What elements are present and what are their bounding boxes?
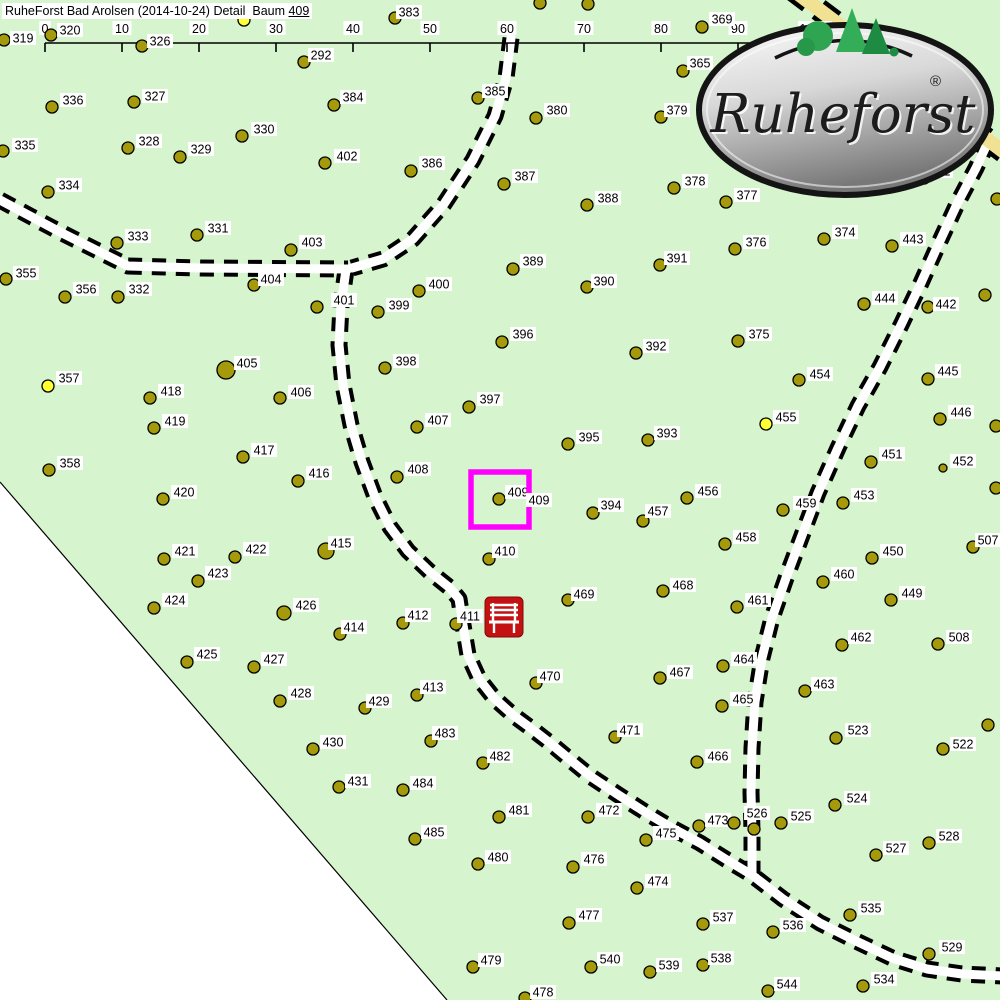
tree-label-402: 402: [337, 150, 358, 164]
tree-label-326: 326: [150, 35, 171, 49]
tree-label-450: 450: [883, 545, 904, 559]
tree-label-478: 478: [533, 986, 554, 1000]
tree-dot-356[interactable]: [59, 291, 71, 303]
tree-dot-403[interactable]: [285, 244, 297, 256]
tree-label-420: 420: [174, 486, 195, 500]
tree-dot-528[interactable]: [923, 837, 935, 849]
tree-dot-398[interactable]: [379, 362, 391, 374]
tree-dot[interactable]: [728, 817, 740, 829]
tree-label-376: 376: [746, 236, 767, 250]
tree-dot-425[interactable]: [181, 656, 193, 668]
tree-label-393: 393: [657, 427, 678, 441]
tree-label-335: 335: [15, 139, 36, 153]
tree-label-443: 443: [903, 233, 924, 247]
tree-label-455: 455: [776, 411, 797, 425]
tree-dot-466[interactable]: [691, 756, 703, 768]
tree-dot-468[interactable]: [657, 585, 669, 597]
tree-label-394: 394: [601, 499, 622, 513]
tree-label-477: 477: [579, 909, 600, 923]
tree-dot-355[interactable]: [0, 273, 12, 285]
tree-dot-377[interactable]: [720, 196, 732, 208]
tree-label-379: 379: [667, 104, 688, 118]
tree-label-355: 355: [16, 267, 37, 281]
tree-label-454: 454: [810, 368, 831, 382]
tree-label-422: 422: [246, 543, 267, 557]
tree-label-389: 389: [523, 255, 544, 269]
tree-label-380: 380: [547, 104, 568, 118]
tree-dot-405[interactable]: [217, 361, 235, 379]
tree-dot-461[interactable]: [731, 601, 743, 613]
tree-dot-357[interactable]: [42, 380, 54, 392]
tree-label-508: 508: [949, 631, 970, 645]
tree-dot-444[interactable]: [858, 298, 870, 310]
tree-label-395: 395: [579, 431, 600, 445]
tree-label-449: 449: [902, 587, 923, 601]
tree-dot-467[interactable]: [654, 672, 666, 684]
tree-dot-426[interactable]: [277, 606, 291, 620]
tree-label-331: 331: [208, 222, 229, 236]
tree-label-407: 407: [428, 414, 449, 428]
tree-label-369: 369: [712, 13, 733, 27]
tree-label-526: 526: [747, 807, 768, 821]
tree-dot[interactable]: [990, 482, 1000, 494]
tree-label-374: 374: [835, 226, 856, 240]
tree-dot-320[interactable]: [45, 29, 57, 41]
tree-label-426: 426: [296, 599, 317, 613]
tree-label-483: 483: [435, 727, 456, 741]
tree-label-458: 458: [736, 531, 757, 545]
tree-label-540: 540: [600, 953, 621, 967]
tree-label-329: 329: [191, 143, 212, 157]
tree-dot-421[interactable]: [158, 553, 170, 565]
tree-label-460: 460: [834, 568, 855, 582]
tree-label-451: 451: [882, 448, 903, 462]
tree-dot-326[interactable]: [136, 40, 148, 52]
tree-label-507: 507: [978, 534, 999, 548]
tree-dot-393[interactable]: [642, 434, 654, 446]
tree-dot-409[interactable]: [493, 493, 505, 505]
tree-label-375: 375: [749, 328, 770, 342]
tree-label-471: 471: [620, 724, 641, 738]
tree-label-415: 415: [331, 537, 352, 551]
tree-dot-397[interactable]: [463, 401, 475, 413]
tree-dot-369[interactable]: [696, 21, 708, 33]
tree-label-388: 388: [598, 192, 619, 206]
tree-label-319: 319: [13, 32, 34, 46]
tree-dot-463[interactable]: [799, 685, 811, 697]
tree-label-378: 378: [685, 175, 706, 189]
tree-label-412: 412: [408, 609, 429, 623]
tree-dot-465[interactable]: [716, 700, 728, 712]
map-title-text: RuheForst Bad Arolsen (2014-10-24) Detai…: [5, 4, 288, 18]
map-viewport[interactable]: 0102030405060708090100m31932032638329233…: [0, 0, 1000, 1000]
tree-label-466: 466: [708, 750, 729, 764]
tree-dot-456[interactable]: [681, 492, 693, 504]
tree-label-430: 430: [323, 736, 344, 750]
tree-label-445: 445: [938, 365, 959, 379]
tree-label-534: 534: [874, 973, 895, 987]
tree-dot-400[interactable]: [413, 285, 425, 297]
tree-dot-384[interactable]: [328, 99, 340, 111]
tree-dot-464[interactable]: [717, 660, 729, 672]
tree-label-456: 456: [698, 485, 719, 499]
scale-label-60: 60: [500, 22, 514, 36]
tree-label-397: 397: [480, 393, 501, 407]
tree-dot-380[interactable]: [530, 112, 542, 124]
tree-dot-536[interactable]: [767, 926, 779, 938]
tree-dot-396[interactable]: [496, 336, 508, 348]
tree-dot-332[interactable]: [112, 291, 124, 303]
tree-label-357: 357: [59, 372, 80, 386]
tree-dot-478[interactable]: [519, 992, 531, 1000]
tree-label-391: 391: [667, 252, 688, 266]
tree-label-398: 398: [396, 355, 417, 369]
tree-label-414: 414: [344, 621, 365, 635]
tree-dot-334[interactable]: [42, 186, 54, 198]
tree-label-527: 527: [886, 842, 907, 856]
scale-label-70: 70: [577, 22, 591, 36]
tree-label-457: 457: [648, 505, 669, 519]
tree-dot-458[interactable]: [719, 538, 731, 550]
tree-label-442: 442: [936, 298, 957, 312]
tree-label-484: 484: [413, 777, 434, 791]
tree-dot-539[interactable]: [644, 966, 656, 978]
tree-dot-523[interactable]: [830, 732, 842, 744]
tree-label-467: 467: [670, 666, 691, 680]
tree-dot-472[interactable]: [582, 811, 594, 823]
tree-dot-423[interactable]: [192, 575, 204, 587]
tree-label-427: 427: [264, 653, 285, 667]
tree-label-400: 400: [429, 278, 450, 292]
tree-dot-399[interactable]: [372, 306, 384, 318]
tree-dot-451[interactable]: [865, 456, 877, 468]
tree-dot-388[interactable]: [581, 199, 593, 211]
tree-label-473: 473: [708, 814, 729, 828]
tree-label-403: 403: [302, 236, 323, 250]
tree-label-429: 429: [369, 695, 390, 709]
tree-dot[interactable]: [990, 420, 1000, 432]
tree-dot[interactable]: [534, 0, 546, 9]
tree-label-482: 482: [490, 750, 511, 764]
tree-label-428: 428: [291, 687, 312, 701]
tree-dot[interactable]: [979, 289, 991, 301]
scale-label-20: 20: [192, 22, 206, 36]
tree-label-365: 365: [690, 57, 711, 71]
tree-label-387: 387: [515, 170, 536, 184]
tree-dot-419[interactable]: [148, 422, 160, 434]
tree-dot-540[interactable]: [585, 961, 597, 973]
tree-label-356: 356: [76, 283, 97, 297]
tree-label-385: 385: [485, 85, 506, 99]
tree-dot-481[interactable]: [493, 811, 505, 823]
tree-label-536: 536: [783, 919, 804, 933]
tree-label-485: 485: [424, 826, 445, 840]
tree-dot-431[interactable]: [333, 781, 345, 793]
bench-icon[interactable]: [485, 597, 523, 637]
tree-label-292: 292: [311, 49, 332, 63]
tree-dot-407[interactable]: [411, 421, 423, 433]
tree-label-472: 472: [599, 804, 620, 818]
tree-label-468: 468: [673, 579, 694, 593]
tree-dot-406[interactable]: [274, 392, 286, 404]
tree-label-383: 383: [399, 6, 420, 20]
tree-label-386: 386: [422, 157, 443, 171]
tree-dot[interactable]: [582, 0, 594, 10]
tree-dot-392[interactable]: [630, 347, 642, 359]
tree-dot-535[interactable]: [844, 909, 856, 921]
tree-dot-378[interactable]: [668, 182, 680, 194]
tree-label-538: 538: [711, 952, 732, 966]
tree-label-332: 332: [129, 283, 150, 297]
tree-dot-420[interactable]: [157, 493, 169, 505]
tree-label-529: 529: [942, 941, 963, 955]
tree-label-524: 524: [847, 792, 868, 806]
tree-dot-453[interactable]: [837, 497, 849, 509]
tree-dot-522[interactable]: [937, 743, 949, 755]
tree-label-431: 431: [348, 775, 369, 789]
logo-registered-mark: ®: [930, 73, 941, 90]
tree-dot-330[interactable]: [236, 130, 248, 142]
tree-label-470: 470: [540, 670, 561, 684]
scale-label-50: 50: [423, 22, 437, 36]
tree-dot-476[interactable]: [567, 861, 579, 873]
tree-dot-442[interactable]: [922, 301, 934, 313]
tree-label-463: 463: [814, 678, 835, 692]
tree-dot-538[interactable]: [697, 959, 709, 971]
tree-label-537: 537: [713, 911, 734, 925]
tree-dot-527[interactable]: [870, 849, 882, 861]
tree-dot-484[interactable]: [397, 784, 409, 796]
tree-label-544: 544: [777, 978, 798, 992]
tree-dot-485[interactable]: [409, 833, 421, 845]
tree-label-424: 424: [165, 594, 186, 608]
tree-dot-329[interactable]: [174, 151, 186, 163]
logo-text: Ruheforst: [710, 84, 977, 145]
tree-label-358: 358: [60, 457, 81, 471]
tree-dot-473[interactable]: [693, 820, 705, 832]
tree-dot-446[interactable]: [934, 413, 946, 425]
tree-label-423: 423: [208, 567, 229, 581]
tree-label-446: 446: [951, 406, 972, 420]
map-title: RuheForst Bad Arolsen (2014-10-24) Detai…: [2, 3, 312, 19]
tree-dot-454[interactable]: [793, 374, 805, 386]
tree-dot-508[interactable]: [932, 638, 944, 650]
tree-dot-459[interactable]: [777, 504, 789, 516]
tree-dot-474[interactable]: [631, 882, 643, 894]
tree-label-327: 327: [145, 90, 166, 104]
tree-dot-428[interactable]: [274, 695, 286, 707]
tree-label-528: 528: [939, 830, 960, 844]
tree-label-539: 539: [659, 959, 680, 973]
tree-label-377: 377: [737, 189, 758, 203]
tree-dot-537[interactable]: [697, 918, 709, 930]
tree-label-410: 410: [495, 545, 516, 559]
tree-label-401: 401: [334, 294, 355, 308]
tree-dot-460[interactable]: [817, 576, 829, 588]
tree-label-479: 479: [481, 954, 502, 968]
tree-label-425: 425: [197, 648, 218, 662]
tree-label-476: 476: [584, 853, 605, 867]
tree-label-384: 384: [343, 91, 364, 105]
tree-dot-335[interactable]: [0, 145, 9, 157]
tree-label-399: 399: [389, 299, 410, 313]
tree-label-523: 523: [848, 724, 869, 738]
tree-dot-443[interactable]: [886, 240, 898, 252]
tree-label-417: 417: [254, 444, 275, 458]
tree-label-525: 525: [791, 810, 812, 824]
tree-dot-462[interactable]: [836, 639, 848, 651]
tree-label-336: 336: [63, 94, 84, 108]
tree-dot-327[interactable]: [128, 96, 140, 108]
tree-dot-375[interactable]: [732, 335, 744, 347]
tree-label-461: 461: [748, 594, 769, 608]
tree-dot-416[interactable]: [292, 475, 304, 487]
scale-label-80: 80: [654, 22, 668, 36]
tree-dot-376[interactable]: [729, 243, 741, 255]
tree-label-475: 475: [656, 827, 677, 841]
tree-label-452: 452: [953, 455, 974, 469]
tree-dot-529[interactable]: [923, 948, 935, 960]
tree-dot-328[interactable]: [122, 142, 134, 154]
tree-dot-544[interactable]: [762, 985, 774, 997]
tree-dot-333[interactable]: [111, 237, 123, 249]
tree-label-334: 334: [59, 179, 80, 193]
tree-dot-424[interactable]: [148, 602, 160, 614]
tree-label-320: 320: [60, 24, 81, 38]
tree-label-459: 459: [796, 497, 817, 511]
tree-label-419: 419: [165, 415, 186, 429]
tree-dot[interactable]: [991, 193, 1000, 205]
tree-dot-336[interactable]: [46, 101, 58, 113]
tree-dot-526[interactable]: [748, 823, 760, 835]
tree-label-474: 474: [648, 875, 669, 889]
tree-dot-374[interactable]: [818, 233, 830, 245]
tree-label-481: 481: [509, 804, 530, 818]
tree-label-333: 333: [128, 230, 149, 244]
tree-label-409: 409: [508, 486, 529, 500]
tree-dot-477[interactable]: [563, 917, 575, 929]
tree-dot-418[interactable]: [144, 392, 156, 404]
tree-label-464: 464: [734, 653, 755, 667]
tree-dot[interactable]: [982, 719, 994, 731]
tree-dot-422[interactable]: [229, 551, 241, 563]
tree-label-411: 411: [460, 610, 480, 624]
tree-dot-358[interactable]: [43, 464, 55, 476]
tree-dot-395[interactable]: [562, 438, 574, 450]
tree-dot-524[interactable]: [829, 799, 841, 811]
tree-label-453: 453: [854, 489, 875, 503]
tree-dot-452[interactable]: [939, 464, 947, 472]
tree-dot-449[interactable]: [885, 594, 897, 606]
tree-dot-389[interactable]: [507, 263, 519, 275]
tree-label-396: 396: [513, 328, 534, 342]
tree-dot-402[interactable]: [319, 157, 331, 169]
tree-dot-319[interactable]: [0, 34, 10, 46]
tree-label-330: 330: [254, 123, 275, 137]
tree-dot-445[interactable]: [922, 373, 934, 385]
tree-dot-534[interactable]: [857, 980, 869, 992]
tree-label-421: 421: [175, 545, 196, 559]
map-title-highlight: 409: [288, 4, 309, 18]
tree-dot-331[interactable]: [191, 229, 203, 241]
tree-dot-386[interactable]: [405, 165, 417, 177]
tree-dot-394[interactable]: [587, 507, 599, 519]
tree-label-416: 416: [309, 467, 330, 481]
tree-dot-450[interactable]: [866, 552, 878, 564]
scale-label-30: 30: [269, 22, 283, 36]
tree-dot-525[interactable]: [775, 817, 787, 829]
tree-dot-430[interactable]: [307, 743, 319, 755]
tree-dot-408[interactable]: [391, 471, 403, 483]
tree-label-392: 392: [646, 340, 667, 354]
tree-dot-387[interactable]: [498, 178, 510, 190]
tree-label-413: 413: [423, 681, 444, 695]
tree-dot-427[interactable]: [248, 661, 260, 673]
tree-label-480: 480: [488, 851, 509, 865]
tree-label-444: 444: [875, 292, 896, 306]
tree-label-406: 406: [291, 386, 312, 400]
tree-label-404: 404: [261, 273, 282, 287]
tree-label-405: 405: [237, 357, 258, 371]
tree-dot-401[interactable]: [311, 301, 323, 313]
tree-label-522: 522: [953, 738, 974, 752]
scale-label-10: 10: [115, 22, 129, 36]
tree-dot-475[interactable]: [640, 834, 652, 846]
map-svg[interactable]: 0102030405060708090100m31932032638329233…: [0, 0, 1000, 1000]
tree-dot-417[interactable]: [237, 451, 249, 463]
tree-label-469: 469: [574, 588, 595, 602]
tree-label-408: 408: [408, 463, 429, 477]
tree-label-390: 390: [594, 275, 615, 289]
detail-label-409: 409: [529, 494, 550, 508]
tree-dot-479[interactable]: [467, 961, 479, 973]
tree-label-535: 535: [861, 902, 882, 916]
tree-dot-455[interactable]: [760, 418, 772, 430]
tree-label-465: 465: [733, 693, 754, 707]
tree-dot-480[interactable]: [472, 858, 484, 870]
tree-label-328: 328: [139, 135, 160, 149]
tree-label-462: 462: [851, 631, 872, 645]
scale-label-40: 40: [346, 22, 360, 36]
tree-label-418: 418: [161, 385, 182, 399]
